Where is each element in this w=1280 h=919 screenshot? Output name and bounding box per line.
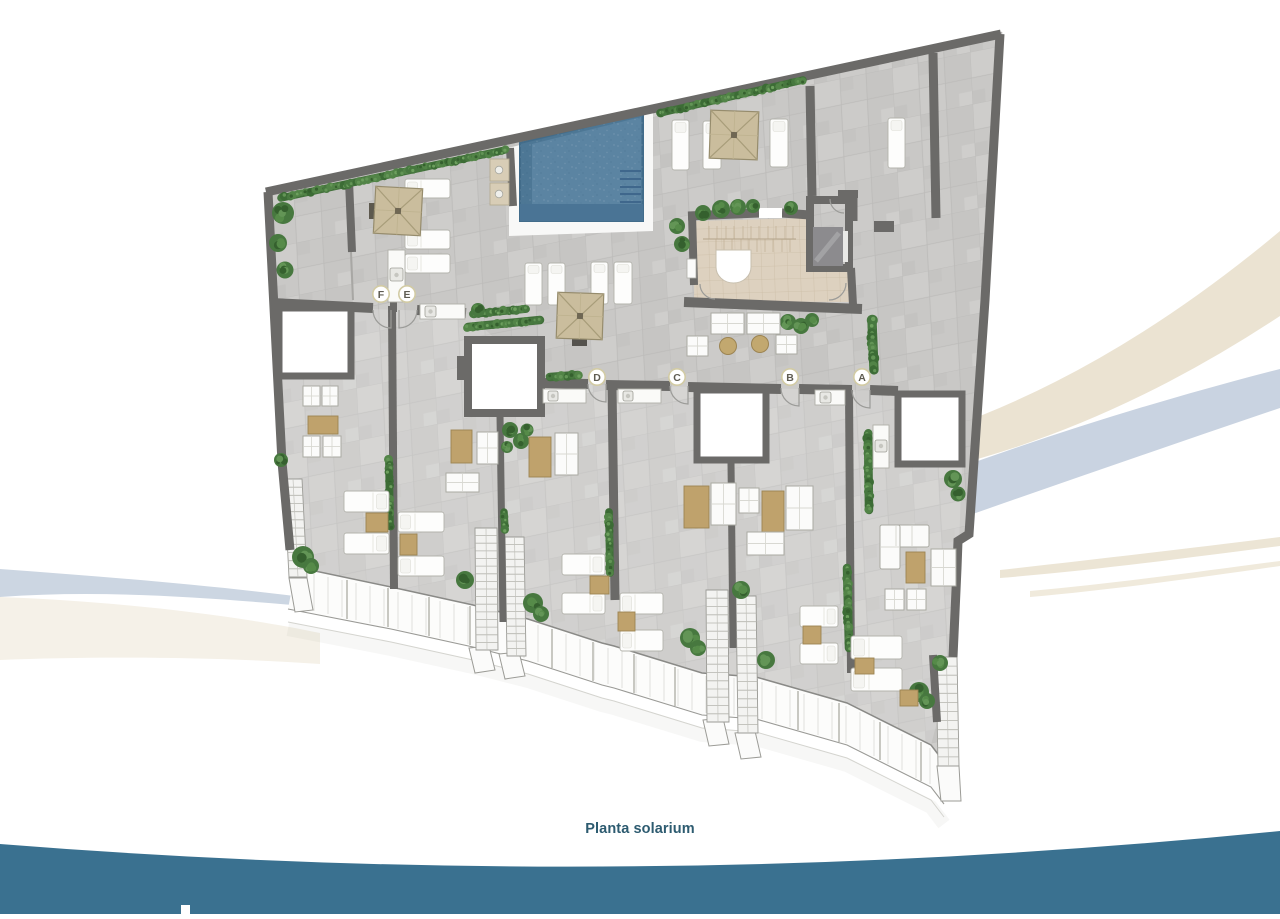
svg-text:C: C [673,372,681,384]
svg-text:A: A [858,372,866,384]
svg-text:E: E [403,289,410,301]
svg-text:Planta solarium: Planta solarium [585,821,694,837]
svg-text:B: B [786,372,794,384]
svg-text:F: F [378,289,385,301]
svg-text:D: D [593,372,601,384]
